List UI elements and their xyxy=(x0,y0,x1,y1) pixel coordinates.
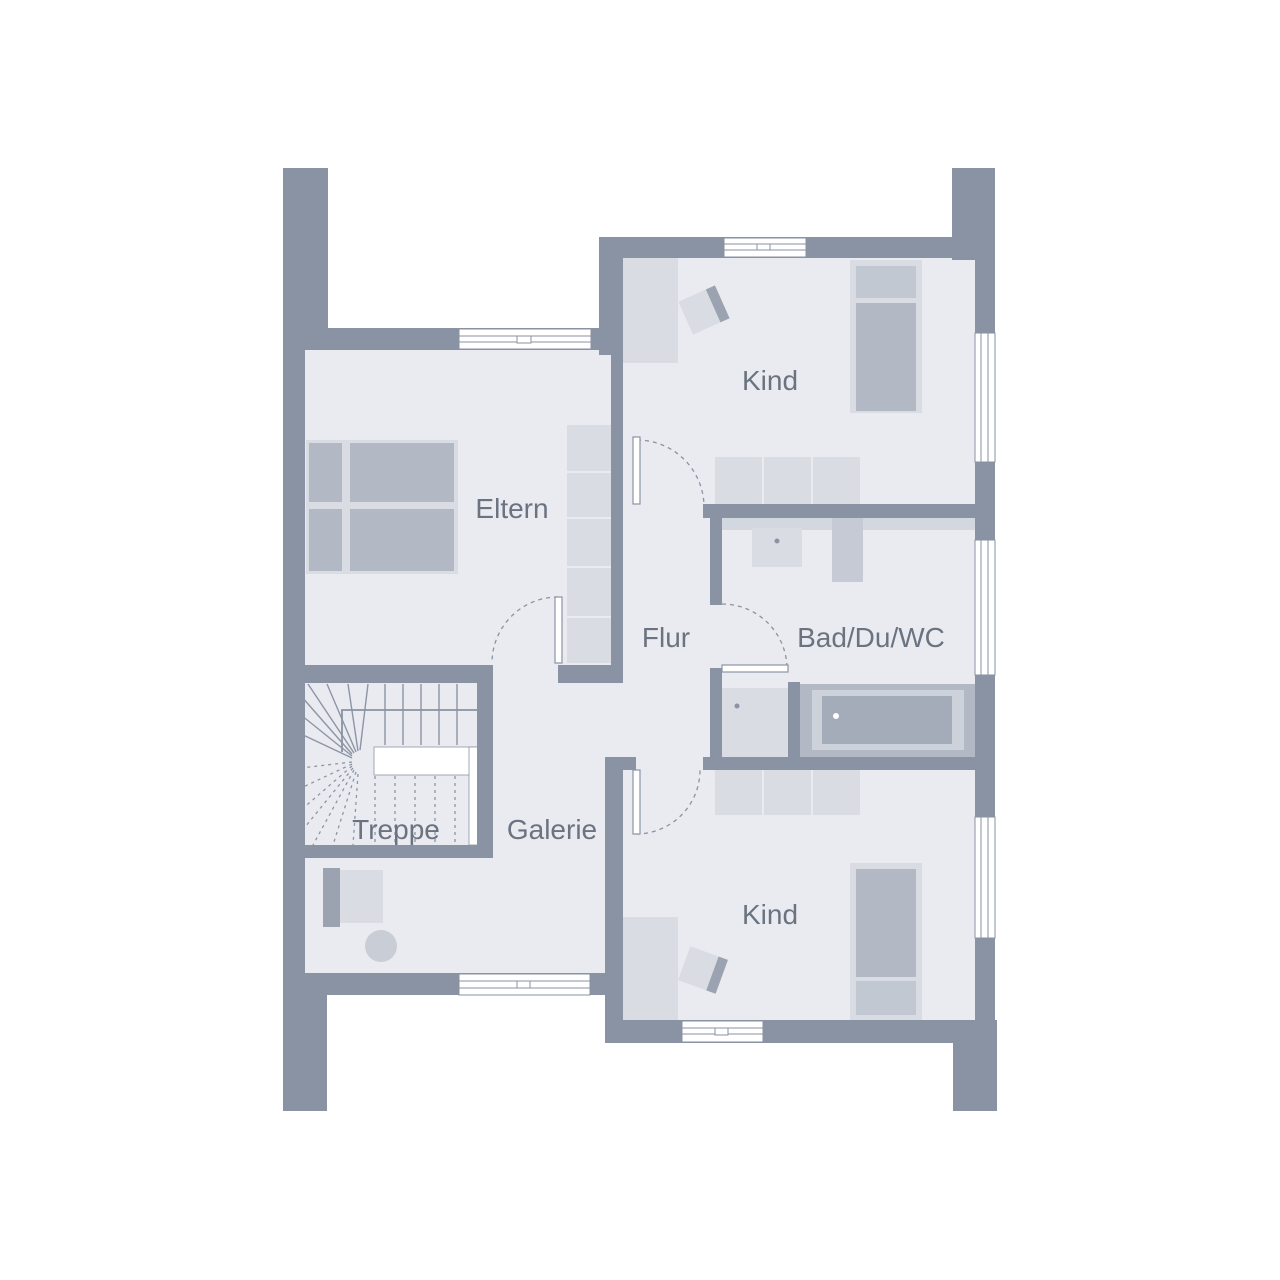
wall-pillar-top-left xyxy=(283,168,328,350)
window xyxy=(975,333,995,462)
wall-kind-top-bottom xyxy=(703,504,975,518)
room-label-bad: Bad/Du/WC xyxy=(797,622,945,653)
stair-landing xyxy=(374,747,477,775)
bed-mattress xyxy=(350,443,454,502)
wall-kind-top-left xyxy=(599,238,623,355)
wardrobe xyxy=(567,425,612,663)
wall-bad-bottom xyxy=(703,757,975,770)
wall-stairs-bottom xyxy=(283,845,493,858)
room-label-kind-bottom: Kind xyxy=(742,899,798,930)
floor-plan-svg: Kind Eltern Flur Bad/Du/WC Treppe Galeri… xyxy=(0,0,1280,1280)
wall-eltern-right xyxy=(611,350,623,673)
wall-stairs-top xyxy=(283,665,493,683)
wall-kind-bottom-left xyxy=(605,770,623,1043)
room-label-flur: Flur xyxy=(642,622,690,653)
bathtub-drain xyxy=(833,713,839,719)
door-leaf xyxy=(722,665,788,672)
bed-pillow xyxy=(309,509,342,571)
window xyxy=(682,1021,763,1042)
window xyxy=(724,238,806,257)
shower-drain xyxy=(735,704,740,709)
wall-pillar-top-right xyxy=(952,168,995,260)
armchair-seat xyxy=(340,870,383,923)
wall-pillar-bottom-right xyxy=(953,1040,997,1111)
window xyxy=(459,329,591,349)
window xyxy=(459,974,590,995)
bed-pillow xyxy=(856,981,916,1015)
room-label-treppe: Treppe xyxy=(352,814,440,845)
floor-plan-page: Kind Eltern Flur Bad/Du/WC Treppe Galeri… xyxy=(0,0,1280,1280)
washbasin xyxy=(752,528,802,567)
toilet xyxy=(832,516,863,582)
door-leaf xyxy=(633,770,640,834)
room-label-eltern: Eltern xyxy=(475,493,548,524)
wall-shower-partition xyxy=(788,682,800,757)
bed-pillow xyxy=(309,443,342,502)
desk xyxy=(622,917,678,1020)
wall-stairs-right xyxy=(477,665,493,858)
floor-flur xyxy=(611,350,716,770)
window xyxy=(975,817,995,938)
bed-pillow xyxy=(856,266,916,298)
wall-bad-left-upper xyxy=(710,518,722,605)
bed-mattress xyxy=(350,509,454,571)
washbasin-drain xyxy=(775,539,780,544)
wall-bad-left-lower xyxy=(710,668,722,757)
bed-mattress xyxy=(856,869,916,977)
bed-mattress xyxy=(856,303,916,411)
plant xyxy=(365,930,397,962)
wardrobe xyxy=(715,457,860,505)
desk xyxy=(623,258,678,363)
door-leaf xyxy=(633,437,640,504)
shower xyxy=(722,688,788,757)
wall-kind-bottom-bottom xyxy=(605,1020,997,1043)
armchair-back xyxy=(323,868,340,927)
wall-eltern-door-stub xyxy=(558,665,623,683)
room-label-galerie: Galerie xyxy=(507,814,597,845)
door-leaf xyxy=(555,597,562,663)
window xyxy=(975,540,995,675)
wardrobe xyxy=(715,770,860,815)
room-label-kind-top: Kind xyxy=(742,365,798,396)
wall-kind-bottom-top-stub xyxy=(605,757,636,770)
